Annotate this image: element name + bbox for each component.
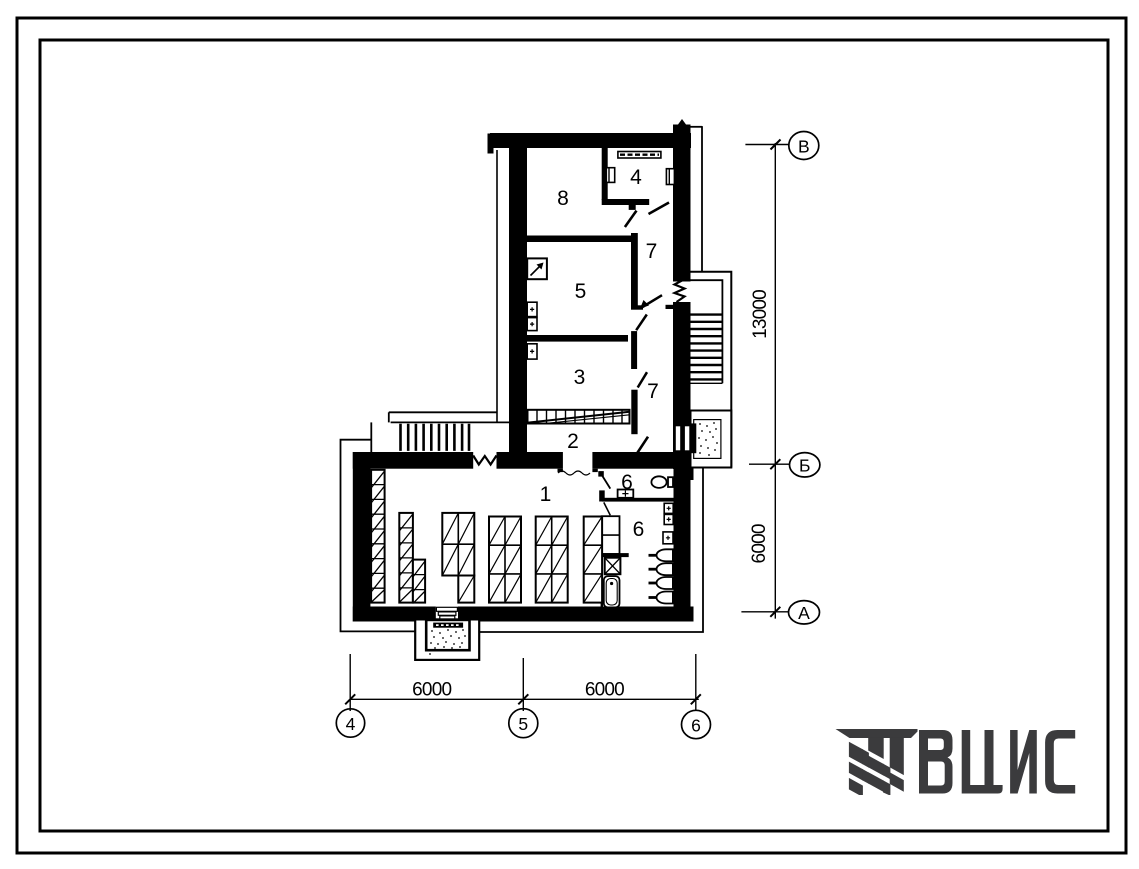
svg-text:6000: 6000 xyxy=(412,680,451,701)
svg-text:2: 2 xyxy=(567,430,579,453)
svg-text:В: В xyxy=(798,137,810,157)
svg-text:Б: Б xyxy=(799,456,810,476)
svg-text:4: 4 xyxy=(346,714,356,734)
svg-text:7: 7 xyxy=(647,380,659,403)
svg-text:13000: 13000 xyxy=(750,290,771,339)
svg-text:5: 5 xyxy=(575,280,587,303)
svg-text:5: 5 xyxy=(518,714,528,734)
svg-text:3: 3 xyxy=(574,366,586,389)
svg-text:6000: 6000 xyxy=(585,680,624,701)
svg-text:6: 6 xyxy=(633,518,645,541)
svg-text:6000: 6000 xyxy=(749,524,770,563)
svg-text:8: 8 xyxy=(557,187,569,210)
svg-text:4: 4 xyxy=(630,166,642,189)
svg-text:7: 7 xyxy=(646,240,658,263)
svg-text:1: 1 xyxy=(540,483,552,506)
svg-text:А: А xyxy=(798,603,810,623)
svg-text:6: 6 xyxy=(691,716,701,736)
svg-text:6: 6 xyxy=(621,471,633,494)
